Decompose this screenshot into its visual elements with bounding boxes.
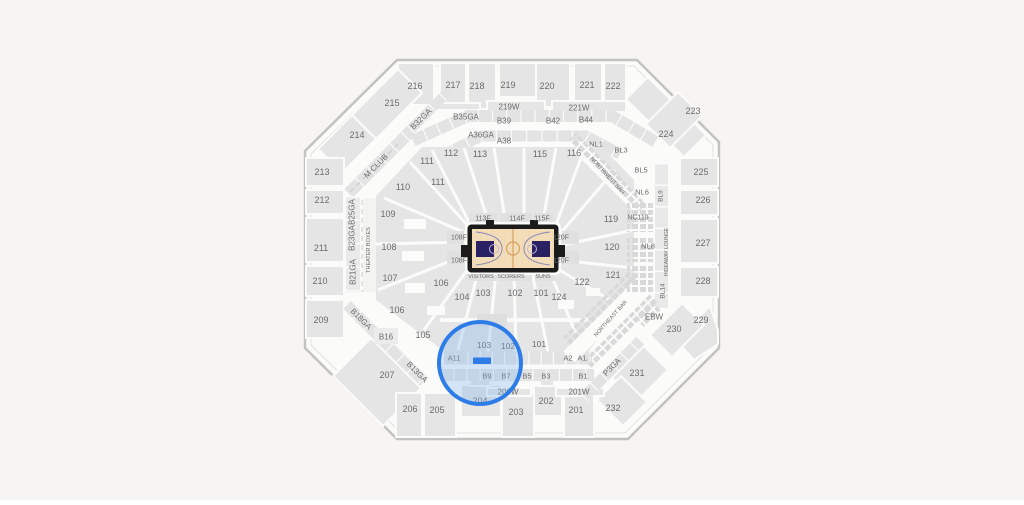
label-122[interactable]: 122 <box>574 277 589 287</box>
label-nl8[interactable]: NL8 <box>641 242 655 251</box>
label-b39[interactable]: B39 <box>497 117 512 126</box>
label-201w[interactable]: 201W <box>569 388 590 397</box>
label-201[interactable]: 201 <box>568 405 583 415</box>
label-221[interactable]: 221 <box>579 80 594 90</box>
label-b21ga[interactable]: B21GA <box>349 258 358 284</box>
label-bl14[interactable]: BL14 <box>660 283 667 299</box>
label-102[interactable]: 102 <box>507 288 522 298</box>
label-101[interactable]: 101 <box>533 288 548 298</box>
label-119[interactable]: 119 <box>604 214 618 224</box>
label-suns: SUNS <box>535 274 551 280</box>
label-nc119[interactable]: NC119 <box>627 215 648 222</box>
label-114f[interactable]: 114F <box>509 216 524 223</box>
section-block[interactable] <box>306 218 344 262</box>
section-block[interactable] <box>424 393 456 437</box>
label-105[interactable]: 105 <box>415 330 430 340</box>
label-113f[interactable]: 113F <box>475 216 490 223</box>
label-a2[interactable]: A2 <box>563 354 572 363</box>
label-nl1[interactable]: NL1 <box>589 140 603 149</box>
label-109[interactable]: 109 <box>380 209 395 219</box>
label-b23ga[interactable]: B23GA <box>348 224 357 250</box>
label-110[interactable]: 110 <box>396 182 410 192</box>
label-227[interactable]: 227 <box>695 238 710 248</box>
label-121[interactable]: 121 <box>605 270 620 280</box>
basketball-court <box>461 220 565 275</box>
label-232[interactable]: 232 <box>605 403 620 413</box>
label-115f[interactable]: 115F <box>534 216 549 223</box>
label-219[interactable]: 219 <box>500 80 515 90</box>
label-217[interactable]: 217 <box>445 80 460 90</box>
label-b35ga[interactable]: B35GA <box>453 113 479 122</box>
label-ebw[interactable]: EBW <box>645 313 664 322</box>
label-b3[interactable]: B3 <box>541 372 550 381</box>
label-108f[interactable]: 108F <box>451 258 467 265</box>
label-visitors: VISITORS <box>468 274 494 280</box>
label-222[interactable]: 222 <box>605 81 620 91</box>
label-214[interactable]: 214 <box>349 130 364 140</box>
label-108f[interactable]: 108F <box>451 235 467 242</box>
label-b16[interactable]: B16 <box>379 333 394 342</box>
section-block <box>438 103 480 110</box>
label-112[interactable]: 112 <box>444 148 458 158</box>
label-101[interactable]: 101 <box>532 339 546 349</box>
label-211[interactable]: 211 <box>314 243 328 253</box>
label-111[interactable]: 111 <box>431 177 445 187</box>
label-225[interactable]: 225 <box>693 167 708 177</box>
label-218[interactable]: 218 <box>469 81 484 91</box>
label-a1[interactable]: A1 <box>577 354 586 363</box>
label-108[interactable]: 108 <box>381 242 396 252</box>
label-216[interactable]: 216 <box>407 81 422 91</box>
selection-highlight[interactable] <box>439 322 521 404</box>
label-202[interactable]: 202 <box>538 396 553 406</box>
label-228[interactable]: 228 <box>695 276 710 286</box>
label-205[interactable]: 205 <box>429 405 444 415</box>
label-b25ga[interactable]: B25GA <box>348 198 357 224</box>
label-scorers: SCORERS <box>497 274 525 280</box>
label-115[interactable]: 115 <box>533 149 547 159</box>
arena-seating-map: 2162172182192202212222152232142242132252… <box>0 0 1024 500</box>
label-b44[interactable]: B44 <box>579 116 594 125</box>
label-210[interactable]: 210 <box>312 276 327 286</box>
label-106[interactable]: 106 <box>433 278 448 288</box>
label-230[interactable]: 230 <box>666 324 681 334</box>
label-120f[interactable]: 120F <box>553 235 569 242</box>
label-111[interactable]: 111 <box>420 156 434 166</box>
label-120[interactable]: 120 <box>604 242 619 252</box>
court-key-right <box>532 241 550 257</box>
label-226[interactable]: 226 <box>695 195 710 205</box>
label-207[interactable]: 207 <box>379 370 394 380</box>
label-231[interactable]: 231 <box>629 368 644 378</box>
label-theater-boxes: THEATER BOXES <box>366 227 372 273</box>
label-120f[interactable]: 120F <box>553 258 569 265</box>
label-nl6[interactable]: NL6 <box>635 188 649 197</box>
label-223[interactable]: 223 <box>685 106 700 116</box>
label-215[interactable]: 215 <box>384 98 399 108</box>
label-213[interactable]: 213 <box>314 167 329 177</box>
label-113[interactable]: 113 <box>473 149 487 159</box>
label-a36ga[interactable]: A36GA <box>468 131 494 140</box>
label-107[interactable]: 107 <box>382 273 397 283</box>
label-b1[interactable]: B1 <box>578 372 587 381</box>
label-103[interactable]: 103 <box>475 288 490 298</box>
label-hideaway-lounge: HIDEAWAY LOUNGE <box>664 227 670 276</box>
label-bl3[interactable]: BL3 <box>614 146 627 155</box>
label-209[interactable]: 209 <box>313 315 328 325</box>
label-229[interactable]: 229 <box>693 315 708 325</box>
selected-seats-marker[interactable] <box>473 358 491 365</box>
label-b5[interactable]: B5 <box>522 372 531 381</box>
label-bl9[interactable]: BL9 <box>658 190 665 202</box>
label-206[interactable]: 206 <box>402 404 417 414</box>
label-104[interactable]: 104 <box>454 292 469 302</box>
label-224[interactable]: 224 <box>658 129 673 139</box>
label-124[interactable]: 124 <box>551 292 566 302</box>
section-block[interactable] <box>396 393 422 437</box>
seating-map-canvas: 2162172182192202212222152232142242132252… <box>0 0 1024 500</box>
label-221w[interactable]: 221W <box>569 104 590 113</box>
label-116[interactable]: 116 <box>567 148 581 158</box>
label-219w[interactable]: 219W <box>499 103 520 112</box>
section-block[interactable] <box>564 393 594 437</box>
label-106[interactable]: 106 <box>389 305 404 315</box>
label-b42[interactable]: B42 <box>546 117 561 126</box>
label-212[interactable]: 212 <box>314 195 329 205</box>
label-203[interactable]: 203 <box>508 407 523 417</box>
court-key-left <box>476 241 494 257</box>
label-220[interactable]: 220 <box>539 81 554 91</box>
label-a38[interactable]: A38 <box>497 137 512 146</box>
label-bl5[interactable]: BL5 <box>634 166 647 175</box>
